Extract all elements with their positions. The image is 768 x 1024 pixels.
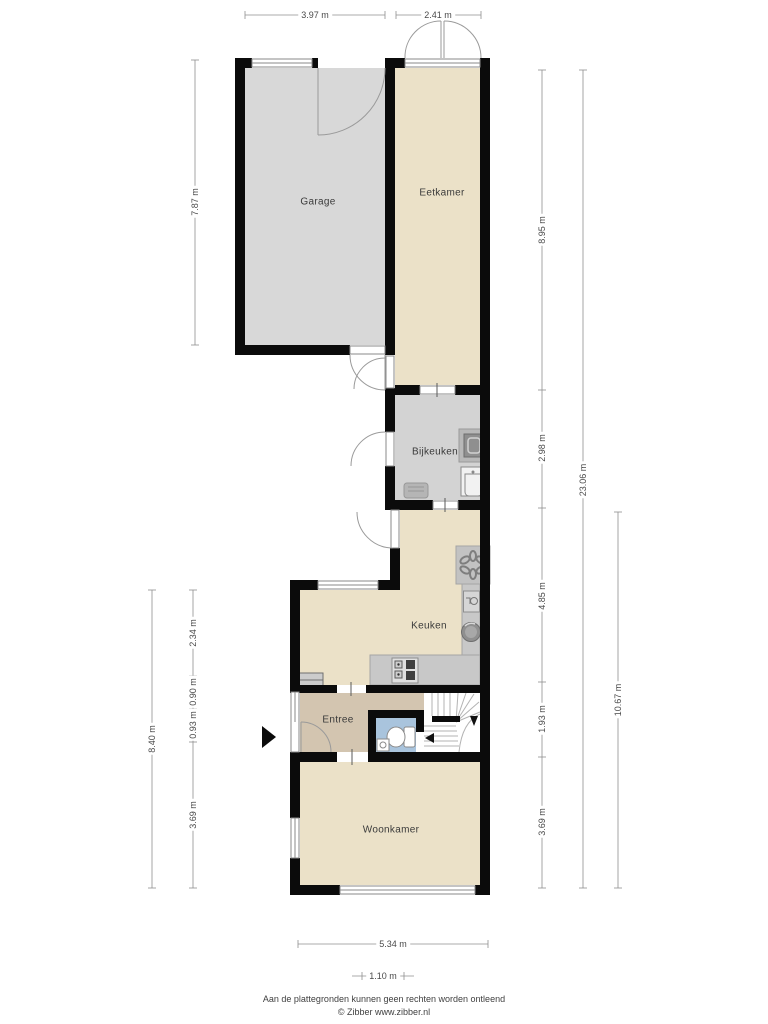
dim-right-lower: 10.67 m: [613, 682, 623, 719]
woonkamer-window: [340, 886, 475, 894]
doormat-icon: [404, 483, 428, 498]
eetkamer-double-door: [405, 21, 481, 58]
dim-left-entree-1: 0.90 m: [188, 676, 198, 708]
dim-right-eetkamer: 8.95 m: [537, 214, 547, 246]
dim-top-garage: 3.97 m: [298, 10, 332, 20]
woonkamer-side-window: [291, 818, 299, 858]
dim-bottom-entree: 1.10 m: [366, 971, 400, 981]
eetkamer-side-door: [354, 358, 385, 389]
dishwasher-icon: [464, 591, 480, 612]
entree-floor-2: [368, 693, 432, 710]
toilet-door-gap: [416, 732, 424, 752]
dim-right-entree: 1.93 m: [537, 703, 547, 735]
stove-icon: [392, 658, 418, 683]
keuken-side-door: [357, 512, 393, 548]
toilet-sink-icon: [377, 739, 389, 751]
garage-label: Garage: [300, 197, 335, 208]
side-door1-threshold: [386, 356, 394, 388]
keuken-side-door-threshold: [391, 510, 399, 548]
keuken-window: [318, 581, 378, 589]
bijkeuken-label: Bijkeuken: [412, 447, 458, 458]
dim-right-keuken: 4.85 m: [537, 580, 547, 612]
dim-bottom-woonkamer: 5.34 m: [376, 939, 410, 949]
woonkamer-label: Woonkamer: [363, 825, 419, 836]
footer-disclaimer: Aan de plattegronden kunnen geen rechten…: [0, 993, 768, 1006]
toilet-icon: [387, 727, 415, 747]
side-door2-threshold: [386, 432, 394, 466]
eetkamer-label: Eetkamer: [419, 188, 464, 199]
entree-label: Entree: [322, 715, 353, 726]
entree-window-door: [291, 692, 299, 752]
dim-left-garage: 7.87 m: [190, 186, 200, 218]
dim-left-total: 8.40 m: [147, 723, 157, 755]
keuken-label: Keuken: [411, 621, 447, 632]
dim-left-entree-2: 0.93 m: [188, 709, 198, 741]
eetkamer-floor: [395, 68, 480, 385]
dim-right-bijkeuken: 2.98 m: [537, 432, 547, 464]
dim-left-keuken: 2.34 m: [188, 617, 198, 649]
dim-right-woonkamer: 3.69 m: [537, 806, 547, 838]
garage-back-door-threshold: [350, 346, 385, 354]
footer-credit: © Zibber www.zibber.nl: [0, 1006, 768, 1019]
bijkeuken-side-door: [351, 432, 385, 466]
dim-right-total: 23.06 m: [578, 462, 588, 499]
kitchen-sink-icon: [462, 623, 481, 642]
dim-left-woonkamer: 3.69 m: [188, 799, 198, 831]
entrance-arrow-icon: [262, 726, 276, 748]
garage-back-door: [350, 355, 385, 390]
floorplan-page: { "plan": { "type": "floorplan", "level_…: [0, 0, 768, 1024]
dim-top-eetkamer: 2.41 m: [421, 10, 455, 20]
garage-window: [252, 59, 312, 67]
eetkamer-door-threshold: [405, 59, 480, 67]
floorplan-drawing: [0, 0, 768, 1024]
woonkamer-floor: [300, 762, 480, 885]
